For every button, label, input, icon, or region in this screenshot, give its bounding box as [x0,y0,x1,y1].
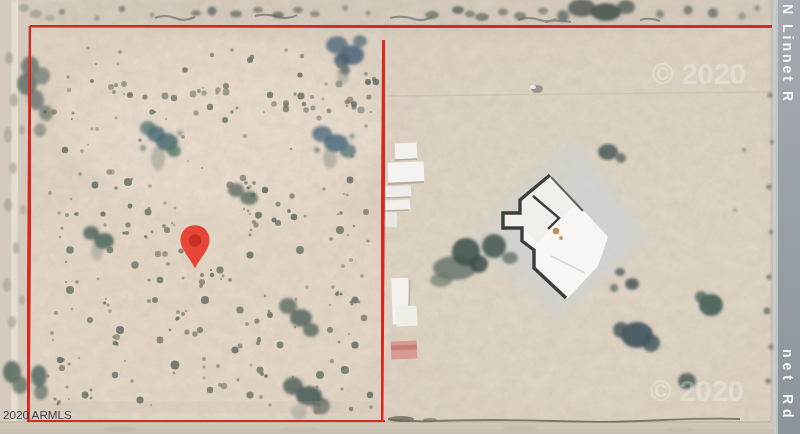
svg-text:2020 ARMLS: 2020 ARMLS [3,408,72,421]
svg-text:© 2020: © 2020 [650,375,744,407]
svg-text:© 2020: © 2020 [652,58,746,90]
svg-text:net Rd: net Rd [780,349,796,423]
svg-text:N Linnet R: N Linnet R [780,4,796,104]
